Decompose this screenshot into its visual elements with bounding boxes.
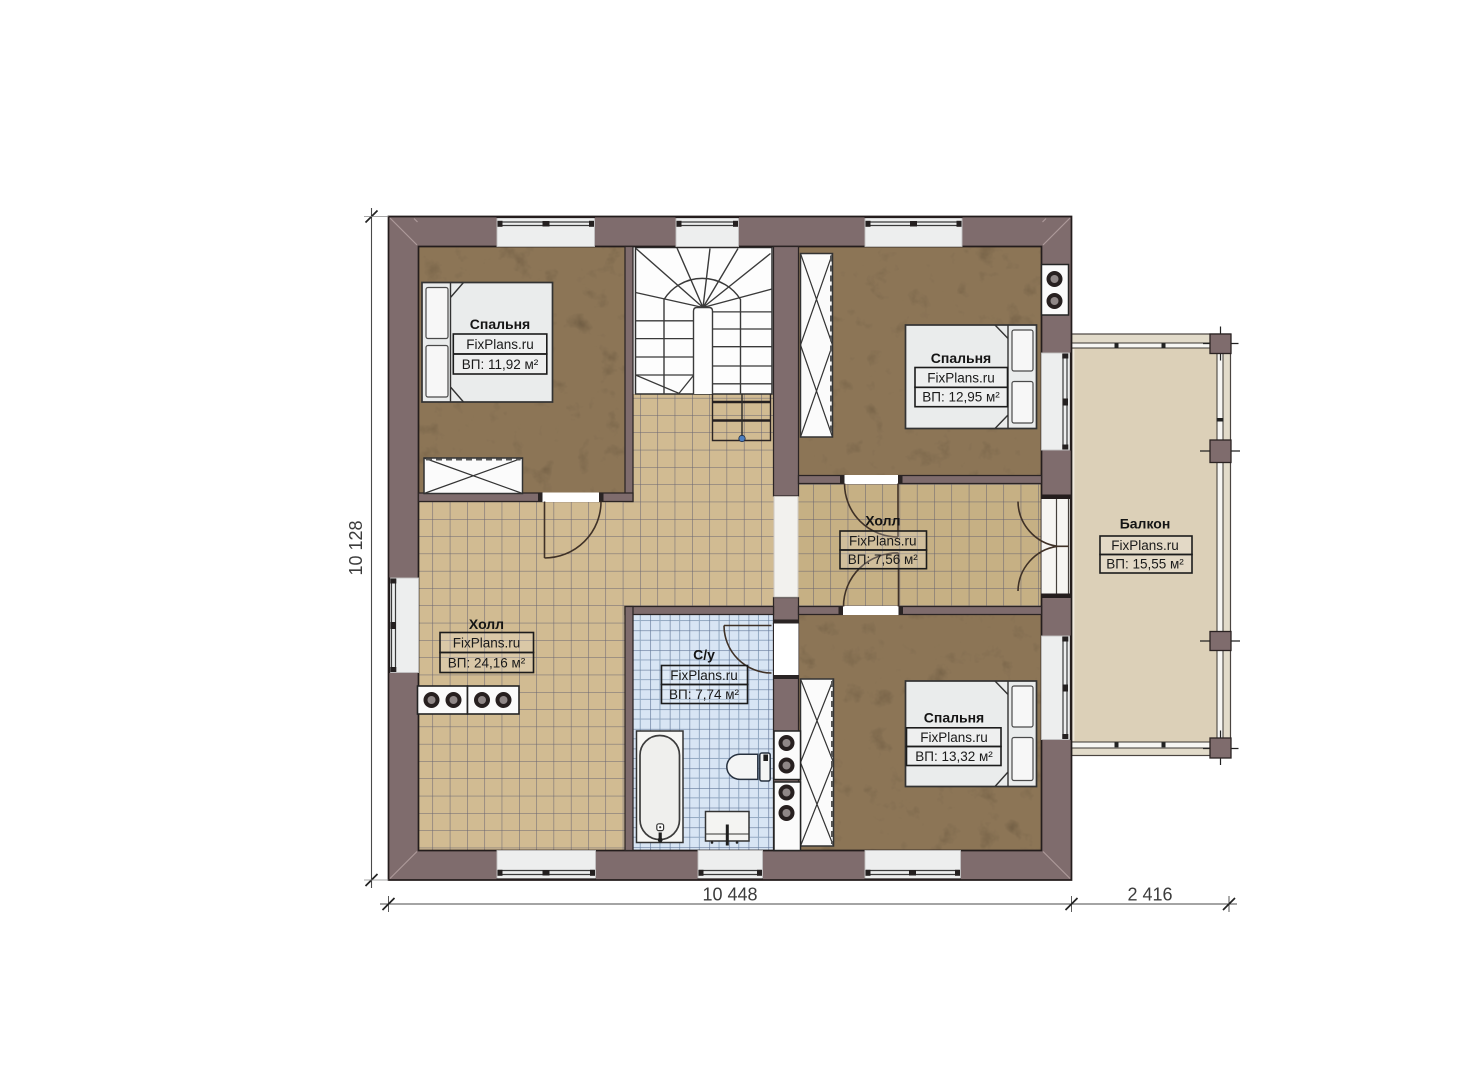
svg-text:Балкон: Балкон: [1120, 516, 1171, 532]
svg-text:FixPlans.ru: FixPlans.ru: [920, 730, 988, 745]
svg-text:10 448: 10 448: [702, 885, 757, 905]
svg-text:FixPlans.ru: FixPlans.ru: [453, 636, 521, 651]
svg-text:Спальня: Спальня: [924, 710, 984, 726]
svg-text:Холл: Холл: [469, 616, 504, 632]
svg-text:Спальня: Спальня: [470, 316, 530, 332]
svg-text:С/у: С/у: [693, 647, 715, 663]
svg-text:ВП: 11,92 м²: ВП: 11,92 м²: [462, 357, 539, 372]
svg-text:FixPlans.ru: FixPlans.ru: [927, 371, 995, 386]
svg-text:ВП: 12,95 м²: ВП: 12,95 м²: [922, 390, 1000, 405]
svg-text:2 416: 2 416: [1127, 885, 1172, 905]
svg-text:10 128: 10 128: [346, 520, 366, 575]
svg-text:ВП: 15,55 м²: ВП: 15,55 м²: [1106, 557, 1184, 572]
svg-text:Холл: Холл: [865, 513, 900, 529]
svg-text:ВП: 7,56 м²: ВП: 7,56 м²: [848, 552, 919, 567]
svg-text:FixPlans.ru: FixPlans.ru: [849, 534, 917, 549]
svg-text:FixPlans.ru: FixPlans.ru: [466, 337, 534, 352]
svg-text:FixPlans.ru: FixPlans.ru: [1111, 538, 1179, 553]
svg-text:Спальня: Спальня: [931, 350, 991, 366]
svg-text:ВП: 24,16 м²: ВП: 24,16 м²: [448, 656, 526, 671]
svg-text:FixPlans.ru: FixPlans.ru: [670, 668, 738, 683]
svg-text:ВП: 7,74 м²: ВП: 7,74 м²: [669, 687, 740, 702]
svg-text:ВП: 13,32 м²: ВП: 13,32 м²: [915, 749, 993, 764]
